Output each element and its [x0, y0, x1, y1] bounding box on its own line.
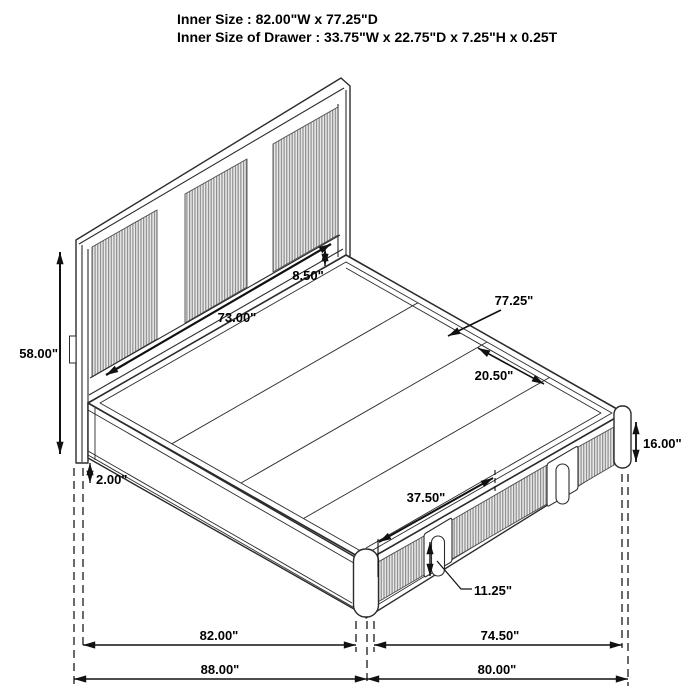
- label-right-span: 74.50": [481, 628, 520, 643]
- label-panel-gap: 8.50": [292, 268, 323, 283]
- label-slat-spacing: 20.50": [475, 368, 514, 383]
- front-corner-leg: [354, 549, 379, 617]
- header-drawer-size: Inner Size of Drawer : 33.75"W x 22.75"D…: [177, 29, 558, 45]
- label-footboard-height: 16.00": [643, 436, 682, 451]
- label-overall-width: 88.00": [201, 662, 240, 677]
- label-headboard-inner-width: 73.00": [218, 310, 257, 325]
- label-handle-cutout: 11.25": [474, 583, 512, 598]
- label-leg-clearance: 2.00": [96, 472, 127, 487]
- label-inner-width: 82.00": [200, 628, 239, 643]
- label-headboard-height: 58.00": [19, 346, 58, 361]
- rail-bracket: [70, 336, 77, 363]
- diagram-canvas: 58.00" 2.00" 73.00" 8.50" 77.25" 20.50" …: [0, 0, 700, 700]
- header-inner-size: Inner Size : 82.00"W x 77.25"D: [177, 11, 378, 27]
- drawer-handle-pill: [556, 464, 569, 504]
- right-corner-leg: [614, 406, 631, 468]
- bed-dimension-diagram: 58.00" 2.00" 73.00" 8.50" 77.25" 20.50" …: [0, 0, 700, 700]
- label-drawer-width: 37.50": [407, 490, 446, 505]
- label-overall-depth: 80.00": [478, 662, 517, 677]
- drawer-handle-pill: [432, 536, 445, 576]
- label-platform-depth: 77.25": [495, 293, 534, 308]
